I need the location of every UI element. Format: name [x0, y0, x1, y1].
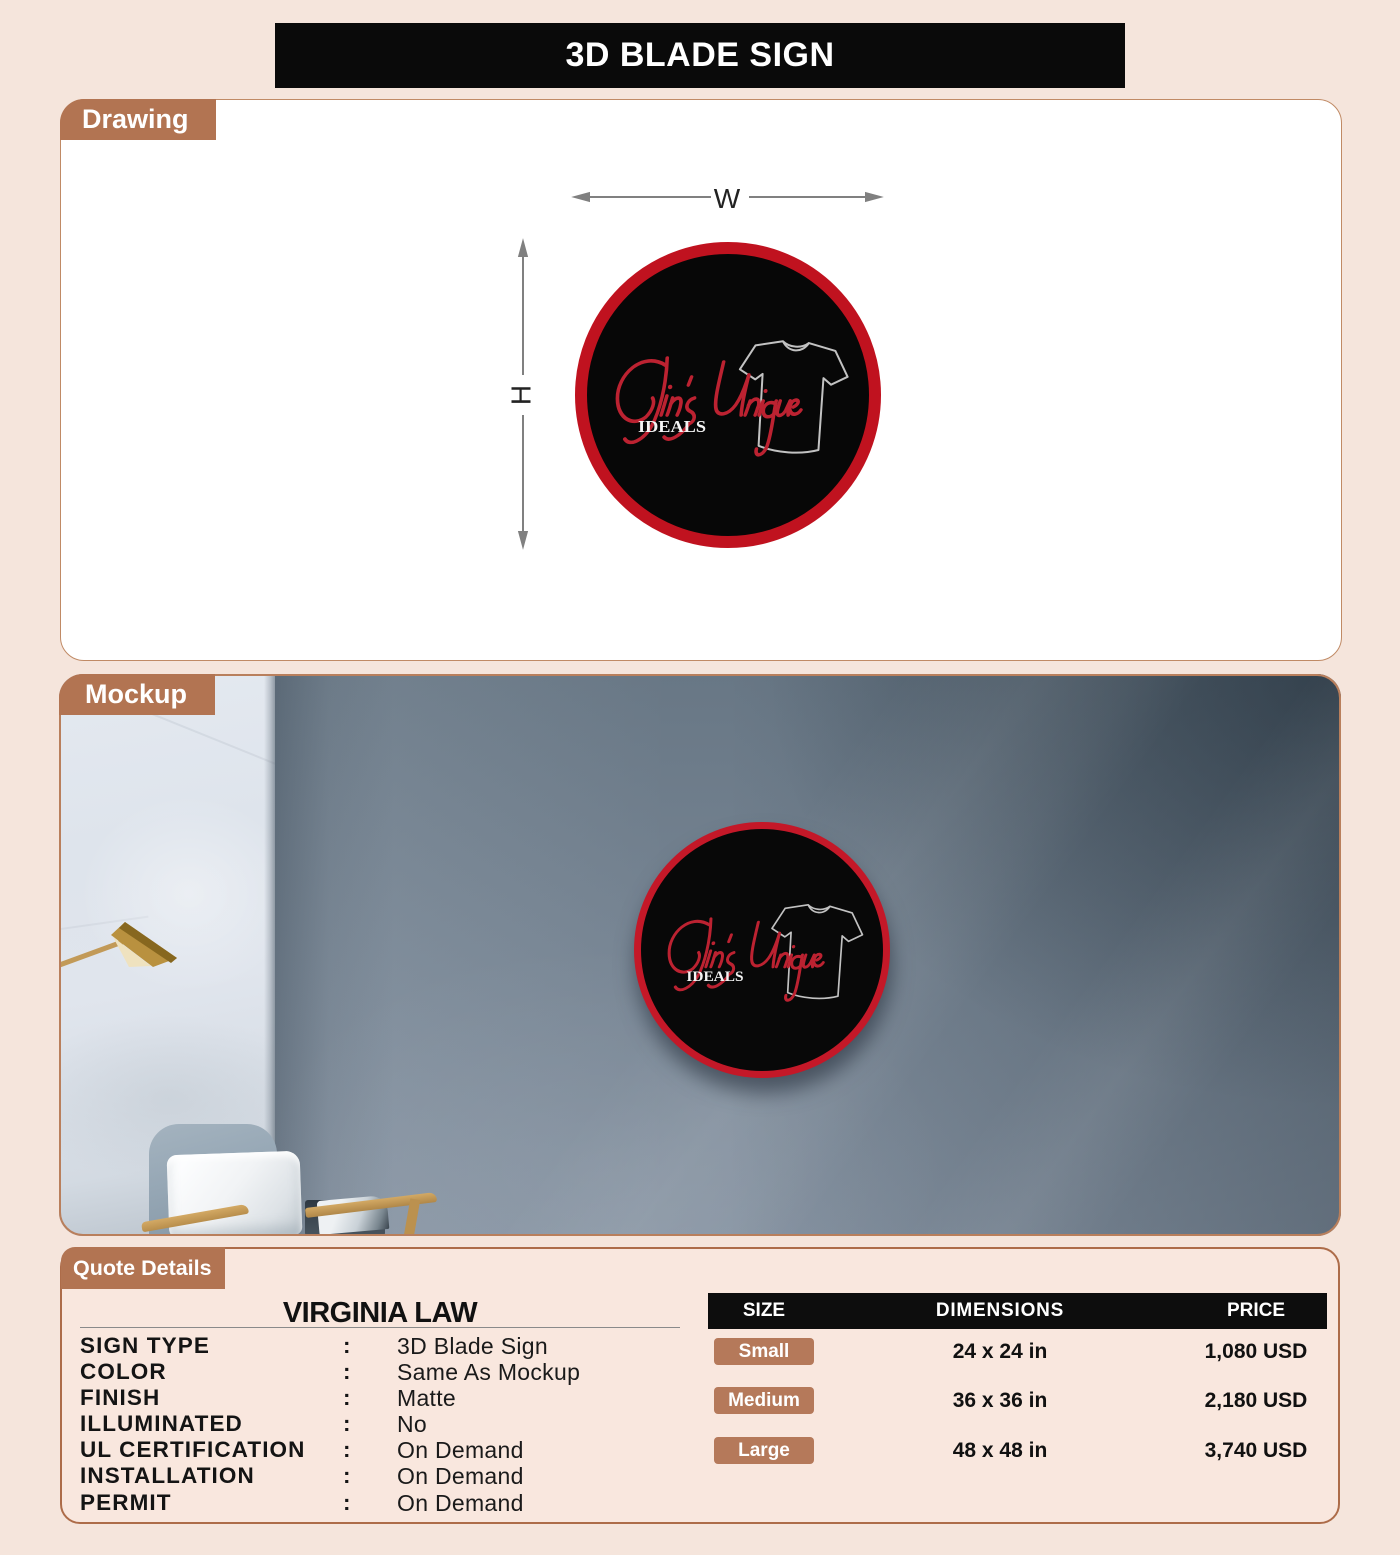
svg-text:H: H [505, 385, 536, 405]
svg-text:W: W [714, 183, 741, 214]
svg-text:IDEALS: IDEALS [638, 417, 706, 436]
